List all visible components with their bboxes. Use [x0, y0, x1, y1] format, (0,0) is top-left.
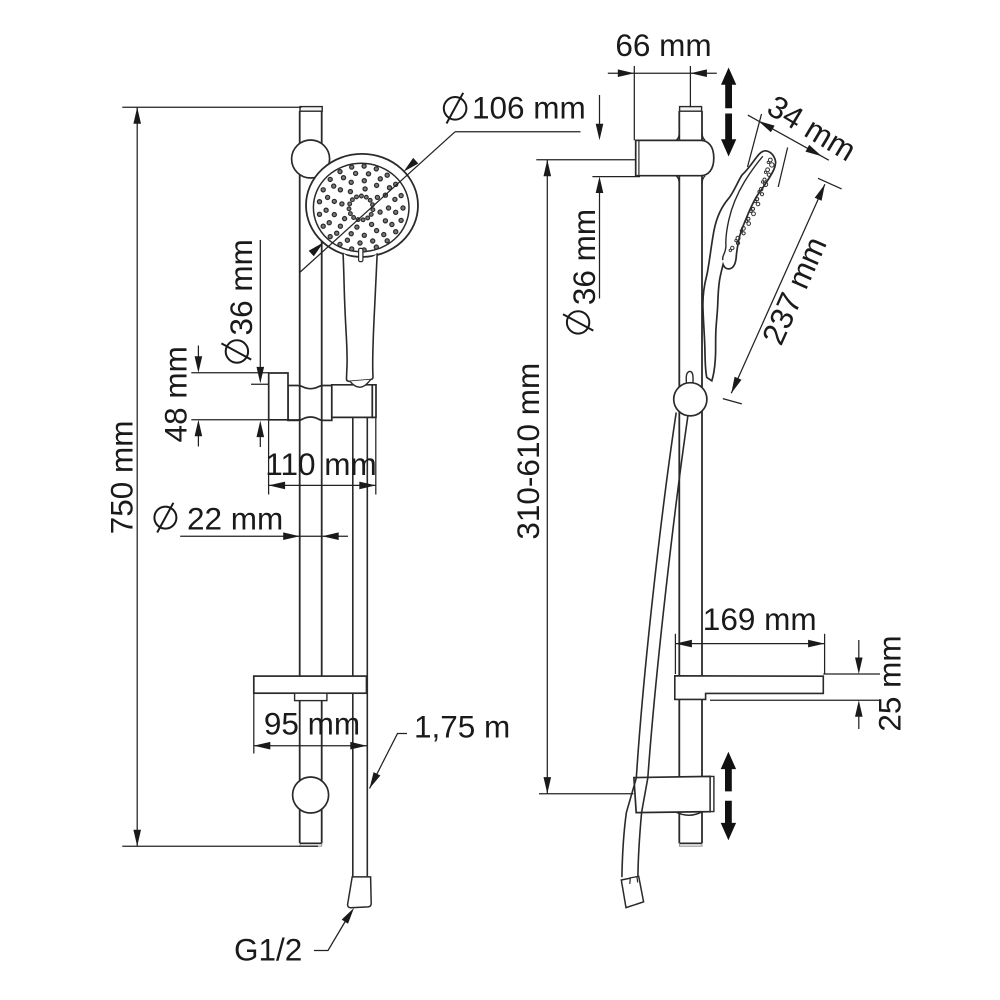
svg-text:1,75 m: 1,75 m	[414, 709, 510, 745]
svg-text:66 mm: 66 mm	[615, 27, 711, 63]
svg-text:22 mm: 22 mm	[187, 501, 283, 537]
svg-text:G1/2: G1/2	[234, 932, 302, 968]
svg-text:36 mm: 36 mm	[223, 239, 259, 335]
svg-text:750 mm: 750 mm	[104, 421, 140, 535]
svg-text:106 mm: 106 mm	[472, 90, 586, 126]
svg-text:48 mm: 48 mm	[158, 346, 194, 442]
svg-text:310-610 mm: 310-610 mm	[510, 363, 546, 540]
svg-text:36 mm: 36 mm	[566, 209, 602, 305]
svg-text:25 mm: 25 mm	[872, 635, 908, 731]
svg-text:95 mm: 95 mm	[264, 706, 360, 742]
svg-text:110 mm: 110 mm	[265, 446, 376, 482]
svg-text:169 mm: 169 mm	[703, 601, 817, 637]
